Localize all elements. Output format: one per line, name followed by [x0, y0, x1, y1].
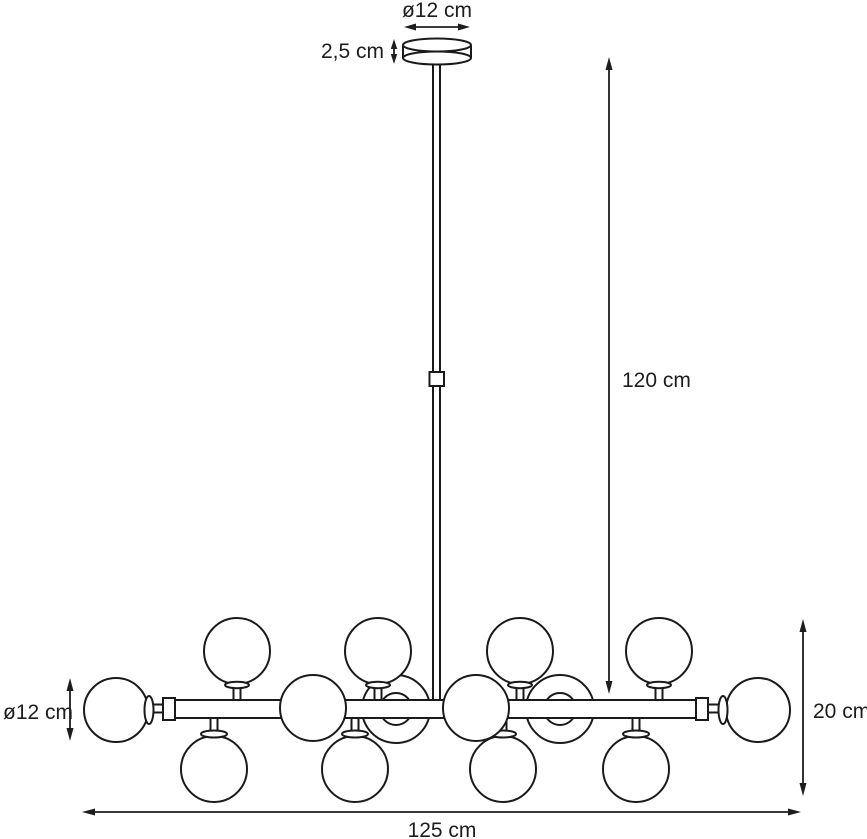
front-shade-2	[443, 675, 509, 741]
shade-diameter-dimension: ø12 cm	[3, 678, 74, 741]
canopy-diameter-label: ø12 cm	[402, 0, 472, 22]
bottom-shade-4	[603, 717, 669, 802]
suspension-drop-dimension: 120 cm	[606, 57, 691, 694]
rod-connector	[430, 372, 445, 386]
fixture-width-label: 125 cm	[408, 819, 477, 839]
canopy-height-label: 2,5 cm	[321, 40, 384, 63]
fixture-bar	[163, 698, 708, 720]
arrow-down-icon	[67, 728, 74, 741]
arrow-left-icon	[404, 24, 416, 31]
canopy-height-dimension: 2,5 cm	[321, 39, 397, 64]
front-shade-1	[280, 675, 346, 741]
shade-diameter-label: ø12 cm	[3, 701, 73, 724]
top-shade-1	[204, 618, 270, 700]
arrow-up-icon	[67, 678, 74, 691]
bottom-shade-1	[181, 717, 247, 802]
left-end-shade	[84, 678, 154, 742]
arrow-up-icon	[606, 57, 613, 70]
arrow-up-icon	[800, 619, 807, 632]
arrow-down-icon	[391, 54, 397, 64]
suspension-drop-label: 120 cm	[622, 369, 691, 392]
fixture-height-label: 20 cm	[813, 700, 867, 723]
arrow-down-icon	[606, 681, 613, 694]
arrow-right-icon	[788, 809, 801, 816]
fixture-height-dimension: 20 cm	[800, 619, 867, 796]
right-end-shade	[719, 678, 791, 742]
arrow-left-icon	[82, 809, 95, 816]
chandelier-dimension-diagram: ø12 cm 2,5 cm 120 cm ø12 cm 20 cm 125 cm	[0, 0, 867, 839]
top-shade-4	[626, 618, 692, 700]
arrow-right-icon	[458, 24, 470, 31]
fixture-width-dimension: 125 cm	[82, 809, 801, 839]
arrow-down-icon	[800, 783, 807, 796]
arrow-up-icon	[391, 39, 397, 49]
ceiling-canopy	[403, 39, 471, 65]
canopy-diameter-dimension: ø12 cm	[402, 0, 472, 31]
